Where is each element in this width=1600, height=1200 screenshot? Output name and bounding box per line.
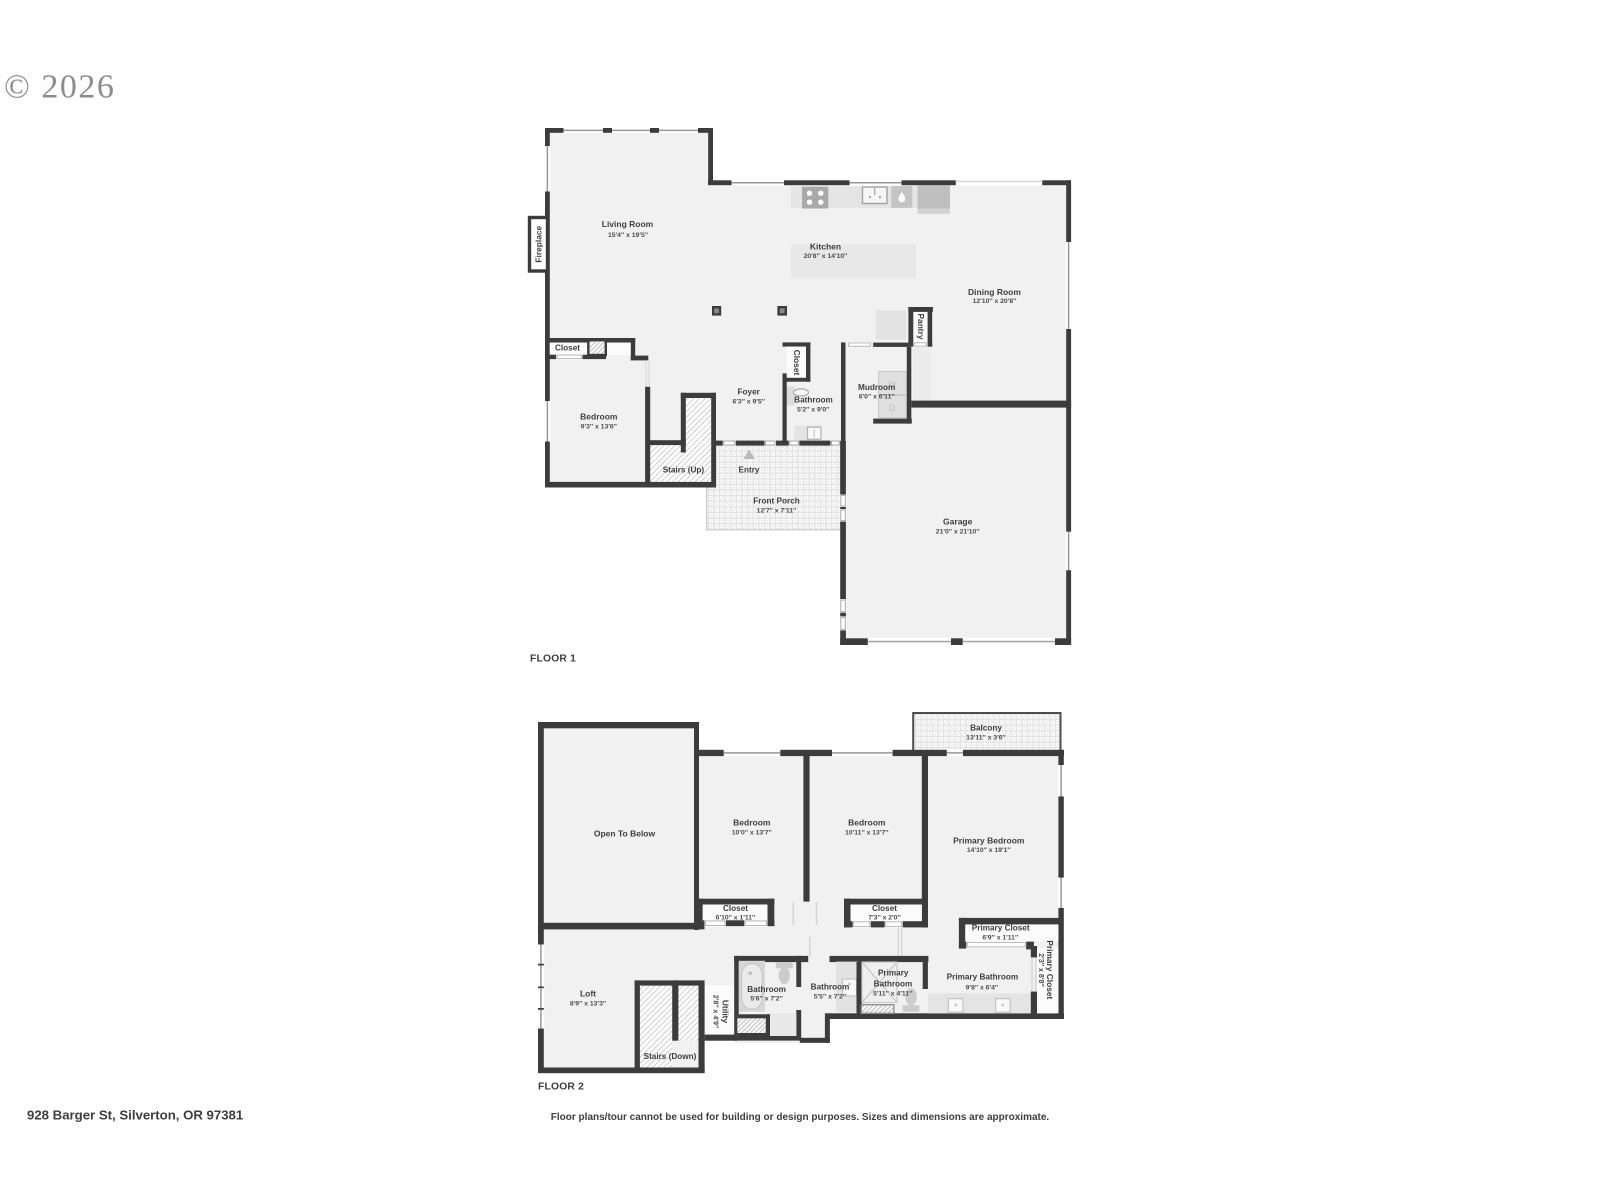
svg-text:6′3″ x 9′5″: 6′3″ x 9′5″ xyxy=(732,398,765,405)
svg-text:12′7″ x 7′11″: 12′7″ x 7′11″ xyxy=(757,508,797,515)
svg-text:2′3″ x 8′8″: 2′3″ x 8′8″ xyxy=(1037,953,1044,987)
svg-text:Closet: Closet xyxy=(723,904,748,913)
svg-text:14′10″ x 19′1″: 14′10″ x 19′1″ xyxy=(967,847,1012,854)
svg-text:5′2″ x 9′0″: 5′2″ x 9′0″ xyxy=(797,406,830,413)
svg-text:Bedroom: Bedroom xyxy=(848,817,886,827)
svg-text:Dining Room: Dining Room xyxy=(968,287,1021,297)
svg-text:Entry: Entry xyxy=(739,465,760,474)
svg-text:Living Room: Living Room xyxy=(602,219,654,229)
svg-text:Loft: Loft xyxy=(580,989,596,999)
svg-text:Primary: Primary xyxy=(878,969,909,978)
svg-text:10′0″ x 13′7″: 10′0″ x 13′7″ xyxy=(732,830,773,837)
svg-text:Floor plans/tour cannot be use: Floor plans/tour cannot be used for buil… xyxy=(551,1112,1050,1123)
svg-text:Balcony: Balcony xyxy=(970,723,1002,732)
svg-text:12′10″ x 20′8″: 12′10″ x 20′8″ xyxy=(973,298,1018,305)
svg-text:8′9″ x 13′3″: 8′9″ x 13′3″ xyxy=(570,1001,607,1008)
svg-text:5′5″ x 7′2″: 5′5″ x 7′2″ xyxy=(814,993,847,1000)
svg-text:20′8″ x 14′10″: 20′8″ x 14′10″ xyxy=(804,253,849,260)
svg-text:Primary Closet: Primary Closet xyxy=(1045,940,1055,999)
svg-text:9′8″ x 6′4″: 9′8″ x 6′4″ xyxy=(966,984,999,991)
svg-text:Bathroom: Bathroom xyxy=(794,395,833,404)
svg-text:15′4″ x 19′5″: 15′4″ x 19′5″ xyxy=(608,232,649,239)
svg-text:Closet: Closet xyxy=(555,343,580,352)
svg-text:Primary Closet: Primary Closet xyxy=(972,924,1030,933)
svg-text:Pantry: Pantry xyxy=(916,313,926,339)
svg-text:Bathroom: Bathroom xyxy=(811,982,850,991)
svg-text:2′8″ x 4′9″: 2′8″ x 4′9″ xyxy=(712,995,719,1029)
svg-text:7′3″ x 2′0″: 7′3″ x 2′0″ xyxy=(868,914,901,921)
svg-text:5′6″ x 7′2″: 5′6″ x 7′2″ xyxy=(750,996,783,1003)
svg-text:Mudroom: Mudroom xyxy=(858,383,895,392)
svg-text:© 2026: © 2026 xyxy=(4,69,115,106)
svg-text:Primary Bathroom: Primary Bathroom xyxy=(947,972,1018,981)
svg-text:Stairs (Up): Stairs (Up) xyxy=(663,466,705,475)
svg-text:FLOOR 2: FLOOR 2 xyxy=(538,1082,584,1093)
svg-text:5′11″ x 4′11″: 5′11″ x 4′11″ xyxy=(873,991,913,998)
svg-text:Closet: Closet xyxy=(872,904,897,913)
svg-text:Bathroom: Bathroom xyxy=(747,985,786,994)
svg-text:Utility: Utility xyxy=(720,1000,730,1024)
svg-text:Stairs (Down): Stairs (Down) xyxy=(644,1052,697,1061)
svg-text:Bathroom: Bathroom xyxy=(874,979,913,988)
svg-text:6′9″ x 1′11″: 6′9″ x 1′11″ xyxy=(982,934,1019,941)
svg-text:Garage: Garage xyxy=(943,517,973,527)
svg-text:10′11″ x 13′7″: 10′11″ x 13′7″ xyxy=(845,830,889,837)
svg-text:D: D xyxy=(889,403,896,413)
svg-text:Primary Bedroom: Primary Bedroom xyxy=(953,835,1025,845)
svg-text:6′10″ x 1′11″: 6′10″ x 1′11″ xyxy=(716,914,756,921)
svg-text:9′3″ x 13′6″: 9′3″ x 13′6″ xyxy=(581,423,618,430)
svg-text:FLOOR 1: FLOOR 1 xyxy=(530,654,576,665)
svg-text:Fireplace: Fireplace xyxy=(534,225,544,262)
svg-text:Kitchen: Kitchen xyxy=(810,242,841,252)
svg-text:928 Barger St, Silverton, OR 9: 928 Barger St, Silverton, OR 97381 xyxy=(27,1108,243,1123)
svg-text:Bedroom: Bedroom xyxy=(580,411,618,421)
svg-text:13′11″ x 3′6″: 13′11″ x 3′6″ xyxy=(966,735,1006,742)
svg-text:Front Porch: Front Porch xyxy=(753,497,799,506)
svg-text:21′0″ x 21′10″: 21′0″ x 21′10″ xyxy=(936,529,981,536)
svg-text:Foyer: Foyer xyxy=(738,387,761,396)
svg-text:Bedroom: Bedroom xyxy=(733,817,771,827)
svg-text:6′0″ x 6′11″: 6′0″ x 6′11″ xyxy=(859,393,896,400)
svg-text:Closet: Closet xyxy=(792,350,802,376)
svg-text:Open To Below: Open To Below xyxy=(594,829,656,839)
